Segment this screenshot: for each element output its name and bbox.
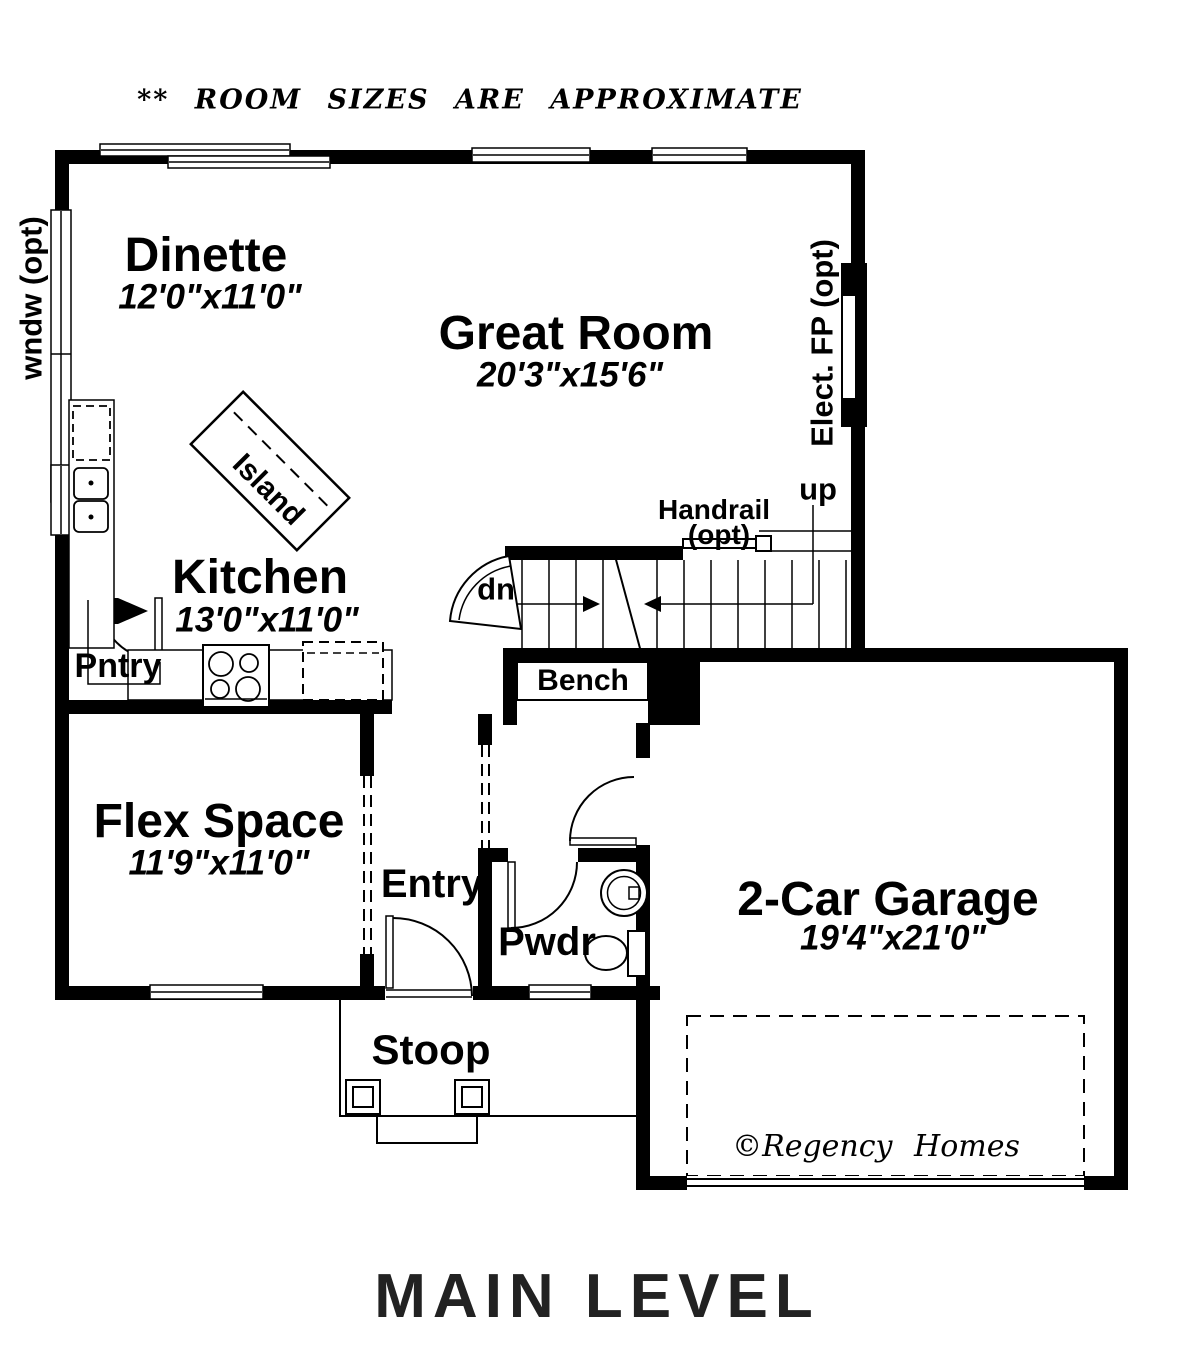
wall-garage-left-upper <box>636 723 650 760</box>
opening-hall-gap <box>476 745 494 848</box>
area-label-pantry: Pntry <box>75 649 162 683</box>
page-title: MAIN LEVEL <box>374 1266 819 1328</box>
toilet-tank <box>628 931 646 976</box>
wall-garage-right <box>1114 648 1128 1190</box>
entry-door-leaf <box>386 916 393 988</box>
stair-landing-lines <box>759 531 851 551</box>
sink-drain-1 <box>89 481 94 486</box>
stair-arrow-right <box>583 596 600 612</box>
area-label-stoop: Stoop <box>372 1029 491 1071</box>
garage-entry-gap <box>636 758 650 845</box>
area-label-entry: Entry <box>381 864 483 904</box>
window-opt-label: wndw (opt) <box>16 216 47 380</box>
room-dims-dinette: 12'0"x11'0" <box>118 280 302 315</box>
room-label-dinette: Dinette <box>125 232 288 280</box>
garage-entry-arc <box>570 777 634 841</box>
area-label-powder: Pwdr <box>498 922 596 962</box>
room-dims-flex-space: 11'9"x11'0" <box>129 846 310 881</box>
handrail-newel <box>756 536 771 551</box>
wall-bench-left-stub <box>503 648 517 725</box>
stair-break-line <box>615 556 641 652</box>
wall-flex-stub-bottom <box>360 954 374 1000</box>
stoop-post-1 <box>346 1080 380 1114</box>
room-label-kitchen: Kitchen <box>172 554 348 602</box>
floor-plan: ** ROOM SIZES ARE APPROXIMATE Dinette 12… <box>0 0 1200 1365</box>
wall-bench-column <box>648 648 700 725</box>
stair-label-up: up <box>799 474 837 505</box>
cased-openings <box>358 745 494 954</box>
approximate-note: ** ROOM SIZES ARE APPROXIMATE <box>137 87 803 114</box>
wall-stair-bottom-garage-top <box>505 648 1128 662</box>
stair-arrow-left <box>644 596 661 612</box>
sink-drain-2 <box>89 515 94 520</box>
fireplace-slot <box>843 296 855 398</box>
powder-door-arc <box>511 862 577 928</box>
powder-door-leaf <box>508 862 515 928</box>
area-label-bench: Bench <box>537 666 629 696</box>
stair-label-handrail-opt: (opt) <box>688 521 750 549</box>
wall-flex-stub-top <box>360 700 374 776</box>
room-dims-garage: 19'4"x21'0" <box>800 921 986 956</box>
room-label-flex-space: Flex Space <box>94 798 345 846</box>
room-dims-great-room: 20'3"x15'6" <box>477 358 663 393</box>
room-label-garage: 2-Car Garage <box>737 876 1038 924</box>
wall-entry-stub-top <box>478 714 492 745</box>
room-label-great-room: Great Room <box>439 310 714 358</box>
fireplace-label: Elect. FP (opt) <box>807 239 838 447</box>
stoop-post-2 <box>455 1080 489 1114</box>
wall-powder-top-right <box>578 848 650 862</box>
garage-entry-leaf <box>570 838 636 845</box>
entry-door-gap <box>385 984 473 1002</box>
stoop-step <box>377 1116 477 1143</box>
powder-sink-faucet <box>629 887 639 899</box>
wall-powder-top-left <box>478 848 508 862</box>
opening-flex-gap <box>358 776 376 954</box>
fireplace-symbol <box>841 263 867 427</box>
refrigerator <box>303 642 383 700</box>
room-dims-kitchen: 13'0"x11'0" <box>175 603 359 638</box>
copyright-text: ©Regency Homes <box>732 1132 1020 1162</box>
stair-label-dn: dn <box>477 574 515 605</box>
wall-stair-top <box>505 546 683 560</box>
